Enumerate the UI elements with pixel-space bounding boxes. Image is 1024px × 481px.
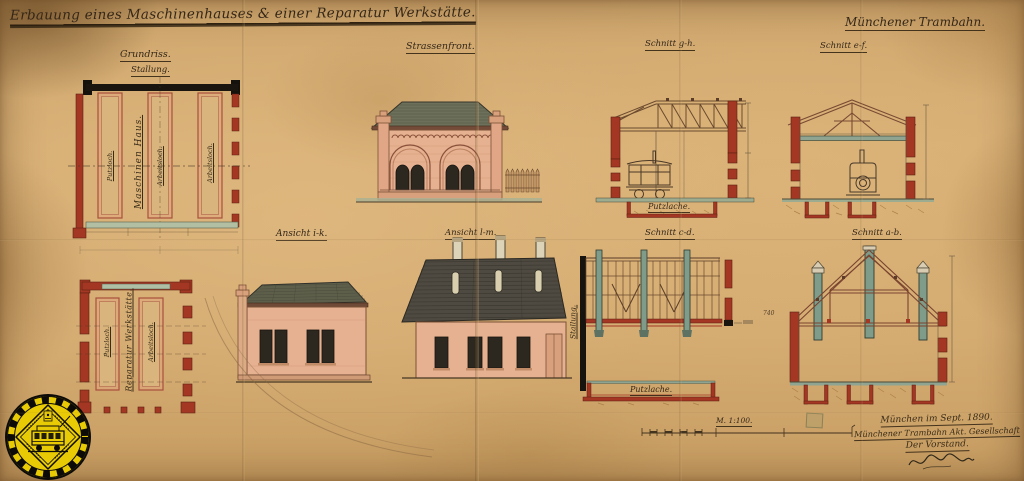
room-label-maschinenhaus: Maschinen Haus. xyxy=(134,115,144,209)
page-title-text: Erbauung eines Maschinenhauses & einer R… xyxy=(10,4,476,24)
pit-label: Arbeitsloch. xyxy=(206,143,214,183)
page-title: Erbauung eines Maschinenhauses & einer R… xyxy=(10,4,476,23)
fold-crease xyxy=(860,0,863,481)
dimension-label: 740 xyxy=(763,310,774,317)
room-label-werkstaette: Reparatur Werkstätte. xyxy=(125,288,134,391)
company-title: Münchener Trambahn. xyxy=(845,15,985,29)
pit-label: Putzloch. xyxy=(103,327,111,357)
fold-crease xyxy=(242,0,245,481)
schnitt-ab-section xyxy=(780,246,958,408)
label-stallung: Stallung. xyxy=(131,65,170,75)
strassenfront-elevation xyxy=(356,90,542,208)
ansicht-ik-elevation xyxy=(236,276,372,386)
label-schnitt-cd: Schnitt c-d. xyxy=(645,228,695,238)
pit-label: Putzloch. xyxy=(106,151,114,181)
pit-label-gh: Putzlache. xyxy=(648,202,690,211)
scale-label: M. 1:100. xyxy=(716,416,752,425)
crest-icon xyxy=(44,411,52,421)
pit-label: Arbeitsloch. xyxy=(147,322,155,362)
muenchner-trambahn-badge xyxy=(4,393,92,481)
label-schnitt-gh: Schnitt g-h. xyxy=(645,39,695,49)
schnitt-ef-section xyxy=(776,93,940,223)
label-schnitt-ab: Schnitt a-b. xyxy=(852,228,902,238)
schnitt-cd-section xyxy=(568,248,768,406)
wall-label-stallung: Stallung. xyxy=(569,305,578,339)
label-strassenfront: Strassenfront. xyxy=(406,41,475,52)
company-title-text: Münchener Trambahn. xyxy=(845,15,985,31)
pit-label: Arbeitsloch. xyxy=(156,146,164,186)
signature-block: München im Sept. 1890. Münchener Trambah… xyxy=(853,412,1022,455)
handwritten-signature xyxy=(905,451,977,473)
grundriss-werkstaette-plan xyxy=(76,262,206,414)
fold-crease xyxy=(679,0,682,481)
pit-label-cd: Putzlache. xyxy=(630,385,672,394)
label-schnitt-ef: Schnitt e-f. xyxy=(820,41,867,51)
label-grundriss: Grundriss. xyxy=(120,49,171,60)
ansicht-lm-elevation xyxy=(396,236,572,394)
label-ansicht-ik: Ansicht i-k. xyxy=(276,229,327,239)
drawing-sheet: Erbauung eines Maschinenhauses & einer R… xyxy=(0,0,1024,481)
